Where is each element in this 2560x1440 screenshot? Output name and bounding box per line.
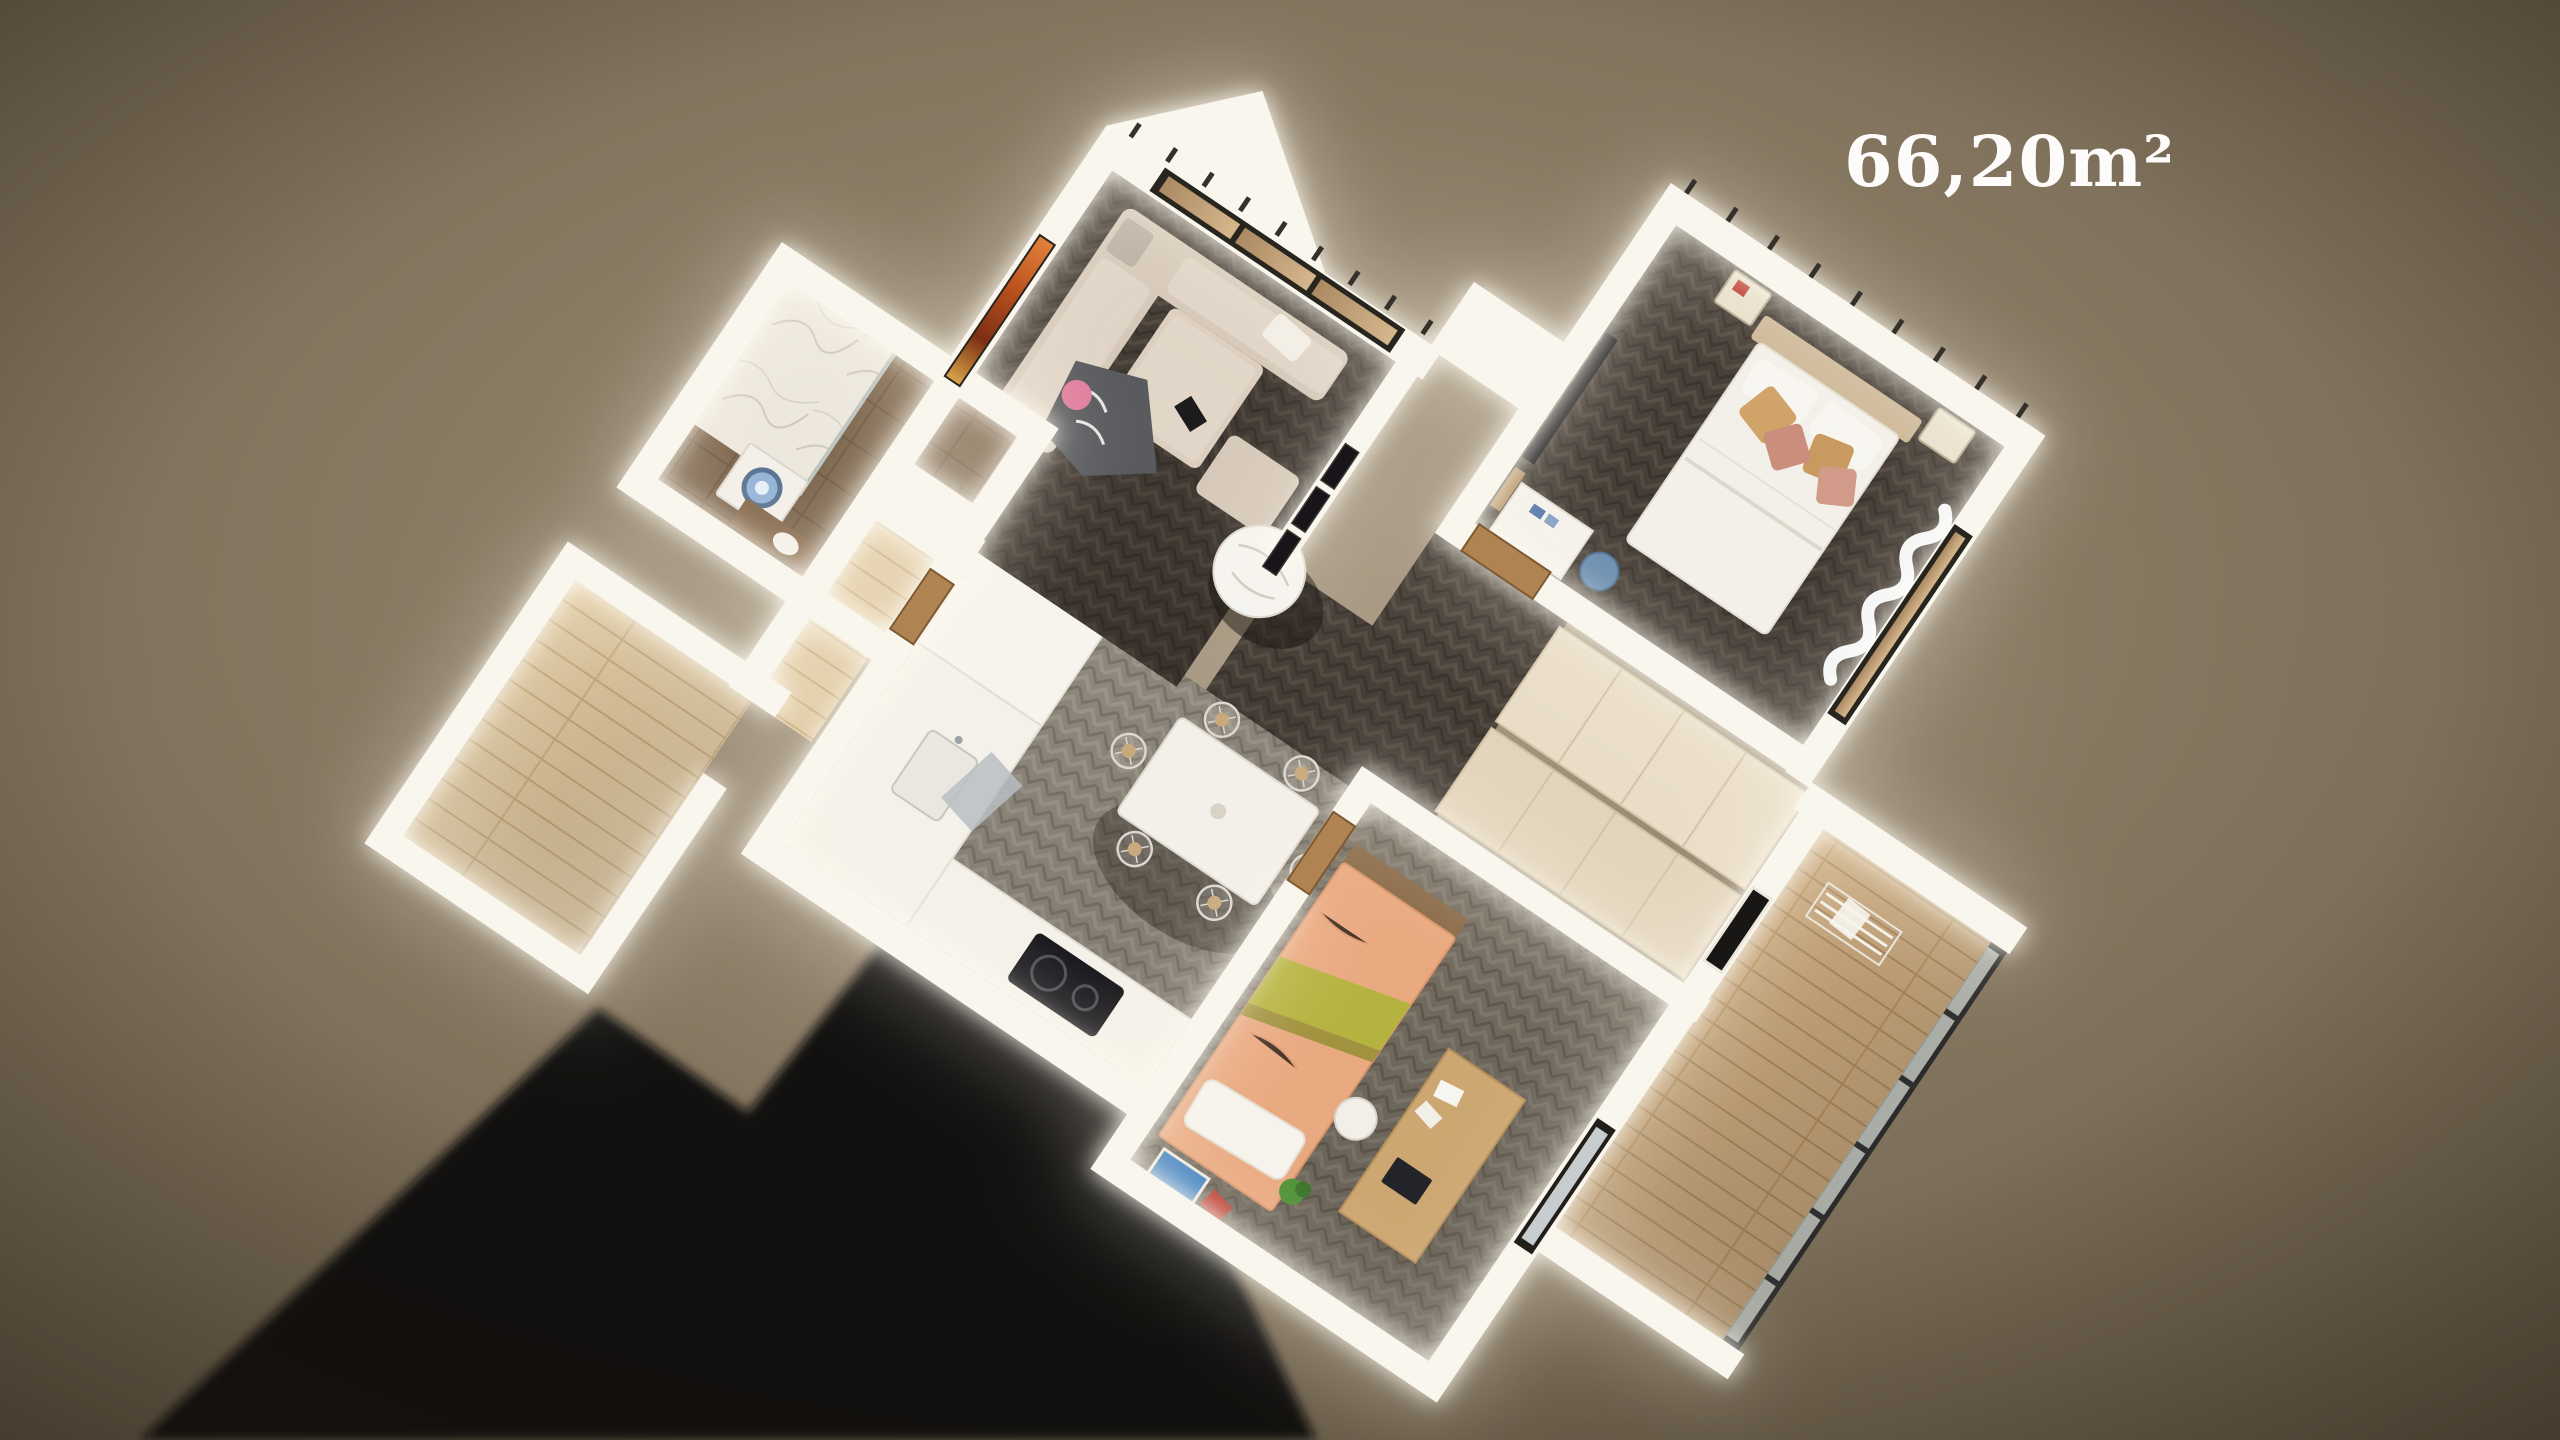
area-label: 66,20m² (1844, 120, 2175, 203)
pink-pillow (1816, 466, 1858, 508)
floorplan-render-stage: 66,20m² (0, 0, 2560, 1440)
floorplan-render: 66,20m² (0, 0, 2560, 1440)
